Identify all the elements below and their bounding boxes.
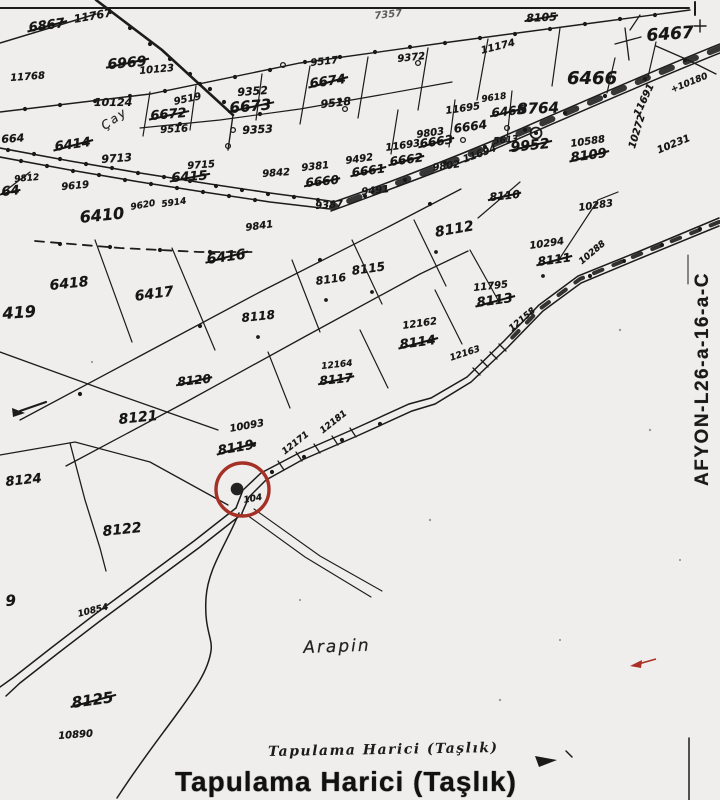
parcel-label: 8115 <box>351 260 386 277</box>
parcel-label: 6410 <box>79 205 125 226</box>
parcel-label: 11695 <box>445 102 481 117</box>
parcel-label: 9491 <box>361 185 390 198</box>
note-tapulama-harici-large: Tapulama Harici (Taşlık) <box>175 766 517 798</box>
parcel-label: 8121 <box>118 409 158 427</box>
parcel-label: 11174 <box>480 39 516 57</box>
parcel-label: 9842 <box>262 168 290 180</box>
parcel-label: 6867 <box>28 17 66 35</box>
parcel-label: 8119 <box>217 439 255 458</box>
parcel-label: 9516 <box>160 125 188 136</box>
parcel-label: 104 <box>243 494 263 506</box>
parcel-label: 8110 <box>489 189 521 203</box>
parcel-label: 12162 <box>402 317 438 332</box>
parcel-label: 12171 <box>281 431 311 457</box>
parcel-label: 6673 <box>229 97 272 116</box>
parcel-label: 8117 <box>319 372 353 387</box>
parcel-label: 6663 <box>419 133 454 150</box>
parcel-label: 9381 <box>301 161 330 174</box>
parcel-label: 6662 <box>389 151 424 168</box>
parcel-label: 10123 <box>139 64 175 77</box>
parcel-label: 8116 <box>315 272 347 287</box>
parcel-label: 8111 <box>537 251 572 268</box>
parcel-label: 8112 <box>434 219 475 240</box>
parcel-label: 8764 <box>517 101 559 117</box>
parcel-label: 6416 <box>206 248 247 267</box>
parcel-label: 9952 <box>510 137 550 155</box>
parcel-label: 6414 <box>54 136 92 154</box>
parcel-label: 8118 <box>241 309 275 324</box>
parcel-label: +10180 <box>670 72 709 95</box>
parcel-label: 10124 <box>94 97 132 108</box>
parcel-label: 9353 <box>242 123 273 136</box>
parcel-label: 6674 <box>309 73 347 91</box>
parcel-label: 6417 <box>134 285 175 304</box>
parcel-labels-layer: 6867117676969101231176810124951966729516… <box>0 0 720 800</box>
parcel-label: 10093 <box>229 419 265 435</box>
parcel-label: 9619 <box>61 181 90 193</box>
parcel-label: 10272 <box>628 114 648 150</box>
parcel-label: 9841 <box>245 220 274 234</box>
parcel-label: 9 <box>5 593 16 609</box>
parcel-label: 11694 <box>462 144 498 165</box>
parcel-label: 10288 <box>578 240 608 267</box>
parcel-label: 10294 <box>529 237 565 252</box>
parcel-label: 12158 <box>508 307 538 334</box>
parcel-label: 9802 <box>432 160 461 174</box>
parcel-label: 64 <box>1 184 20 199</box>
parcel-label: 664 <box>1 132 25 145</box>
parcel-label: 9713 <box>101 152 132 165</box>
parcel-label: 9518 <box>320 96 352 110</box>
parcel-label: 5914 <box>161 198 187 210</box>
parcel-label: 6660 <box>305 174 339 189</box>
parcel-label: 8125 <box>71 690 114 711</box>
parcel-label: 6672 <box>150 107 187 123</box>
parcel-label: 6418 <box>49 275 89 293</box>
parcel-label: 10231 <box>656 134 692 156</box>
parcel-label: Çay <box>99 105 130 131</box>
parcel-label: 10890 <box>58 730 93 742</box>
map-sheet-code: AFYON-L26-a-16-a-C <box>692 229 714 529</box>
parcel-label: 9387 <box>315 200 343 212</box>
parcel-label: 10283 <box>578 199 614 214</box>
parcel-label: 6661 <box>351 162 386 179</box>
parcel-label: 8120 <box>177 373 211 388</box>
parcel-label: 11767 <box>73 7 113 24</box>
parcel-label: Arapin <box>303 638 371 657</box>
parcel-label: 6664 <box>453 118 488 135</box>
parcel-label: 8124 <box>5 472 42 489</box>
parcel-label: 7357 <box>374 9 403 22</box>
parcel-label: 6466 <box>567 70 617 88</box>
parcel-label: 9517 <box>310 56 339 69</box>
parcel-label: 6415 <box>171 169 208 184</box>
parcel-label: 10854 <box>77 603 110 619</box>
parcel-label: 8114 <box>399 334 437 352</box>
parcel-label: 8105 <box>526 11 557 24</box>
parcel-label: 6467 <box>646 25 694 45</box>
parcel-label: 12163 <box>449 345 482 363</box>
parcel-label: 9620 <box>130 200 156 213</box>
parcel-label: 11768 <box>10 72 45 84</box>
parcel-label: 12181 <box>319 410 349 436</box>
parcel-label: 8122 <box>102 521 142 539</box>
parcel-label: 8113 <box>476 292 514 310</box>
parcel-label: 9372 <box>397 52 426 65</box>
cadastral-map-scan: 6867117676969101231176810124951966729516… <box>0 0 720 800</box>
parcel-label: 8109 <box>570 147 608 165</box>
parcel-label: 419 <box>2 304 36 322</box>
parcel-label: 9618 <box>481 93 507 105</box>
parcel-label: 9519 <box>173 92 202 108</box>
